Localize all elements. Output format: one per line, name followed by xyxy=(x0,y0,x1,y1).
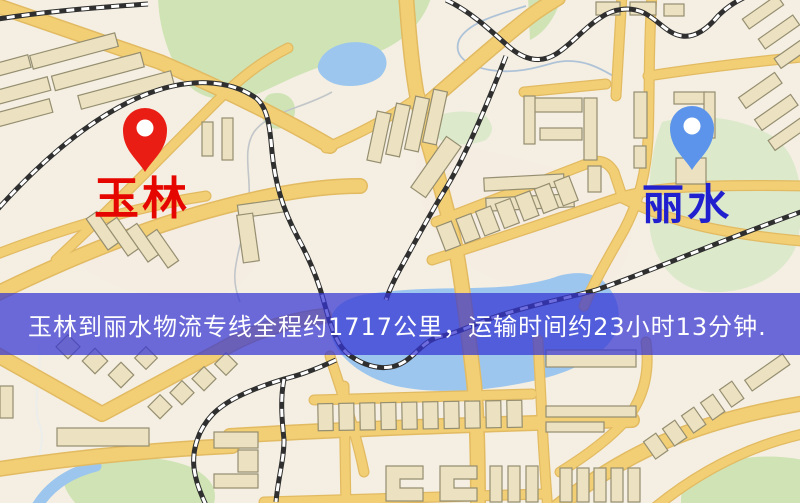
route-info-text: 玉林到丽水物流专线全程约1717公里，运输时间约23小时13分钟. xyxy=(28,307,767,342)
route-info-banner: 玉林到丽水物流专线全程约1717公里，运输时间约23小时13分钟. xyxy=(0,293,800,355)
map-image: 玉林 丽水 玉林到丽水物流专线全程约1717公里，运输时间约23小时13分钟. xyxy=(0,0,800,503)
map-canvas xyxy=(0,0,800,503)
